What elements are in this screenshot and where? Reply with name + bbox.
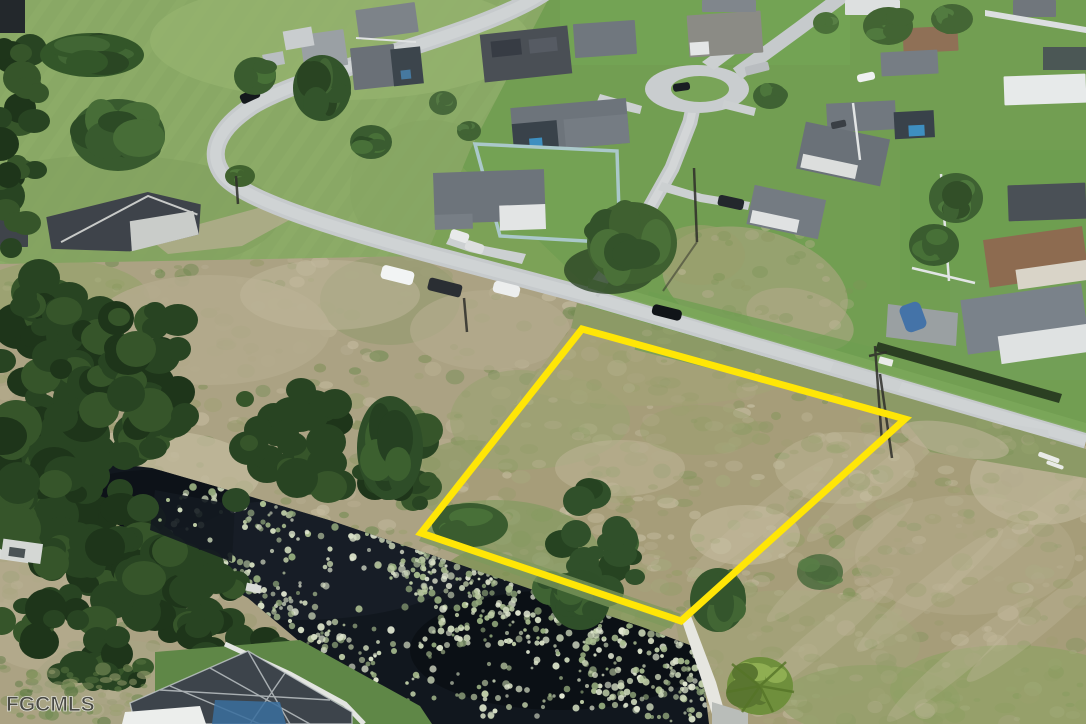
svg-text:FGCMLS: FGCMLS [6, 693, 95, 716]
